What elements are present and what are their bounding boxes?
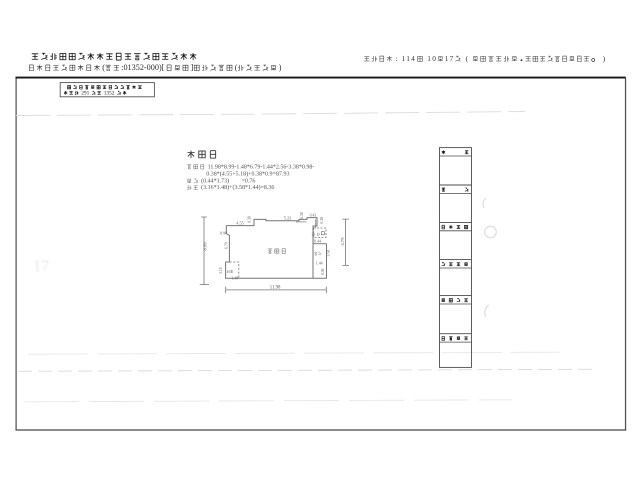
svg-text::01352-000)[: :01352-000)[ xyxy=(121,63,164,72)
svg-text:0.98: 0.98 xyxy=(220,230,227,235)
svg-text:17: 17 xyxy=(445,54,455,63)
svg-text:6.79: 6.79 xyxy=(340,237,345,246)
svg-text:6.79: 6.79 xyxy=(224,242,228,249)
svg-text:): ) xyxy=(603,54,606,63)
svg-text:11.98*8.99-1.48*6.79-1.44*2.56: 11.98*8.99-1.48*6.79-1.44*2.56-3.38*0.98… xyxy=(208,164,315,170)
svg-text:291: 291 xyxy=(81,91,89,97)
svg-text:4.55: 4.55 xyxy=(236,221,243,226)
svg-text:(0.44: (0.44 xyxy=(313,239,321,243)
svg-text:11.98: 11.98 xyxy=(270,285,281,290)
svg-text:0.38: 0.38 xyxy=(321,268,325,275)
svg-text:3.58: 3.58 xyxy=(326,250,330,257)
svg-text:(: ( xyxy=(466,54,469,63)
svg-text:0.38: 0.38 xyxy=(300,212,304,219)
svg-text:): ) xyxy=(279,63,282,72)
svg-text:1.44: 1.44 xyxy=(316,261,323,265)
svg-text:(: ( xyxy=(235,63,238,72)
svg-text:(0.44*1.73): (0.44*1.73) xyxy=(201,178,229,185)
svg-text:0.38: 0.38 xyxy=(247,216,251,223)
svg-text:]: ] xyxy=(191,63,194,72)
svg-text:8.99: 8.99 xyxy=(203,242,208,251)
svg-text:(: ( xyxy=(102,63,105,72)
svg-text:=0.76: =0.76 xyxy=(242,179,256,185)
svg-text:0.43: 0.43 xyxy=(310,213,317,217)
svg-text:3.16: 3.16 xyxy=(219,267,223,274)
svg-text:1352: 1352 xyxy=(104,91,115,97)
svg-text:114: 114 xyxy=(402,54,416,63)
svg-text:0.38: 0.38 xyxy=(320,217,324,224)
svg-text:(3.16*1.48)+(3.58*1.44)=8.36: (3.16*1.48)+(3.58*1.44)=8.36 xyxy=(201,184,274,191)
svg-text:17: 17 xyxy=(33,258,49,275)
svg-text:0.38*(4.55+5.18)+0.38*0.9=87.9: 0.38*(4.55+5.18)+0.38*0.9=87.93 xyxy=(206,171,289,178)
svg-text:1.48: 1.48 xyxy=(231,276,238,280)
svg-text::: : xyxy=(395,54,397,63)
svg-text:10: 10 xyxy=(427,54,437,63)
svg-text:5.23: 5.23 xyxy=(284,215,291,220)
